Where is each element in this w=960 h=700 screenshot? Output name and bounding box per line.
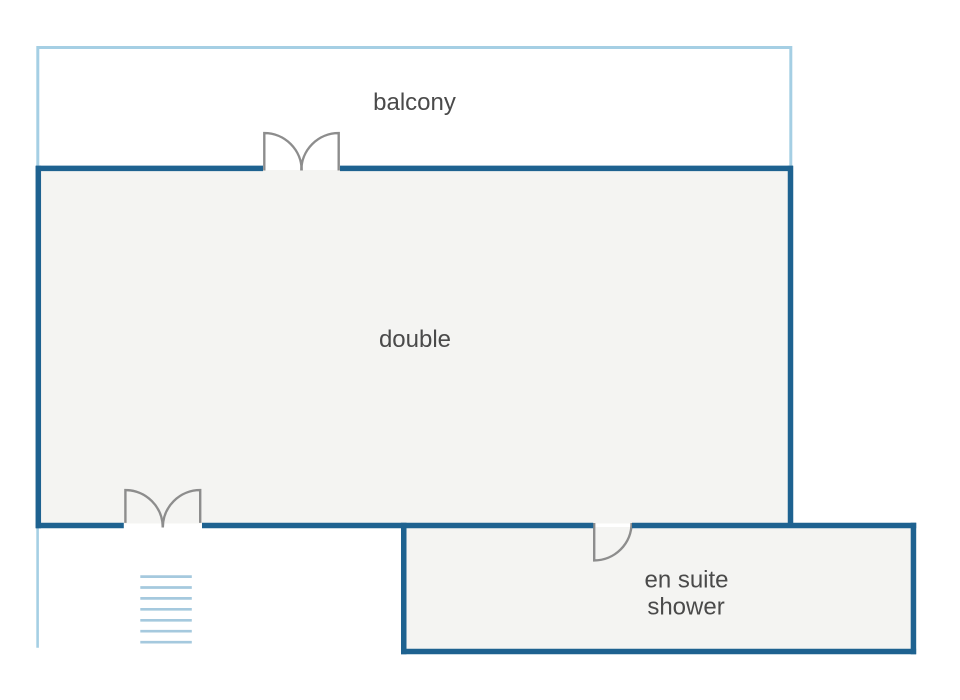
svg-text:en suite: en suite [644, 567, 728, 594]
svg-text:shower: shower [647, 594, 724, 621]
svg-text:balcony: balcony [373, 89, 456, 116]
svg-text:double: double [379, 326, 451, 353]
